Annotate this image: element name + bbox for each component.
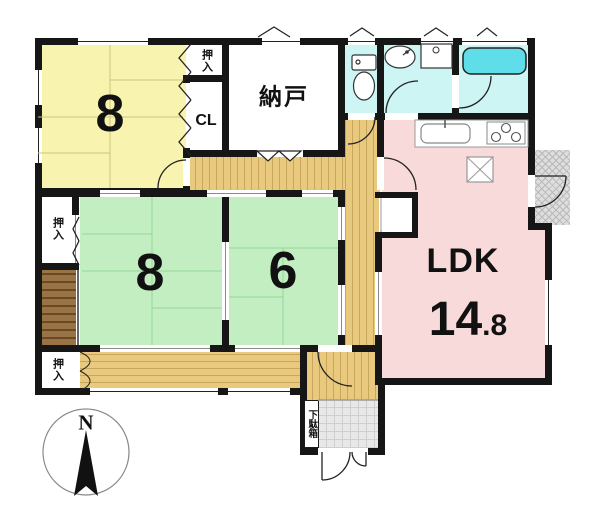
label-closet-top: 押入 [201,49,212,73]
sliding-door-opening [375,272,382,335]
label-nando: 納戸 [259,86,309,109]
floor-plan: 8 納戸 押入 CL 8 6 押入 押入 LDK 14.8 下駄箱 N [0,0,600,505]
washroom-floor [382,42,452,117]
fusuma-opening [222,242,229,320]
shoji-opening [100,190,140,197]
hallway-vertical-floor [345,115,379,347]
wall [338,197,345,207]
shoji-opening [207,190,266,197]
entrance-hall-floor [305,347,379,402]
wall [338,240,345,285]
label-tatami-8-size: 8 [136,247,165,299]
door-opening [385,113,418,120]
wall [35,263,79,270]
window [35,128,42,163]
wall [210,345,235,352]
wall [222,42,229,155]
label-closet-cl: CL [195,113,216,129]
door-opening [528,175,535,207]
wall [35,38,42,70]
door-opening [257,150,303,157]
compass-north-label: N [78,413,93,434]
window [421,38,453,45]
door-opening [318,345,352,352]
label-western-room-size: 8 [96,88,125,140]
door-opening [348,113,375,120]
label-ldk-size-int: 14 [429,296,482,344]
wall [378,385,385,455]
window [90,388,218,395]
wall [300,448,318,455]
wall [452,42,459,75]
window [228,388,290,395]
wall [340,113,348,120]
wall [377,42,384,113]
wall [368,448,385,455]
door-opening [377,157,384,190]
wall [35,163,42,395]
wall [545,225,552,280]
label-closet-south: 押入 [52,358,63,382]
shoji-opening [338,285,345,335]
wall [352,345,377,352]
label-ldk-size: 14.8 [429,296,507,344]
label-ldk: LDK [427,244,500,278]
wall [35,345,100,352]
tokonoma-floor [40,268,76,347]
window-caret-marks [258,27,497,37]
closet-opening [72,215,79,263]
window [348,38,375,45]
genkan-tile-floor [318,400,378,448]
door-opening [183,158,190,186]
wall [338,42,345,155]
wall [148,38,262,45]
window [35,70,42,105]
wall [218,388,228,395]
wall [528,38,535,120]
wall [375,238,382,272]
ldk-niche [382,198,412,232]
shoji-opening [235,345,300,352]
toilet-floor [345,42,377,117]
wall [528,117,535,175]
wall [72,195,79,215]
entrance-threshold [318,448,368,455]
label-ldk-size-frac: .8 [482,311,507,341]
wall [333,190,345,197]
window [545,280,552,345]
bathroom-floor [457,42,528,117]
shoji-opening [338,207,345,240]
wall [266,190,302,197]
shoji-opening [302,190,333,197]
wall [35,190,100,197]
side-porch [535,150,570,225]
window [78,38,148,45]
wall [183,150,257,157]
label-shoe-cabinet: 下駄箱 [307,410,317,439]
door-opening [452,75,459,108]
wall [418,113,535,120]
shoji-opening [100,345,210,352]
label-tatami-6-size: 6 [269,245,298,297]
wall [35,388,90,395]
wall [140,190,207,197]
engawa-floor [80,350,302,390]
entrance-double-door [322,452,366,480]
wall [375,335,382,378]
wall [375,378,552,385]
wall [377,117,384,157]
window [462,38,527,45]
wall [222,197,229,242]
wall [35,105,42,128]
label-closet-middle: 押入 [52,217,63,241]
compass-north-arrow [74,430,98,496]
window [262,38,300,45]
